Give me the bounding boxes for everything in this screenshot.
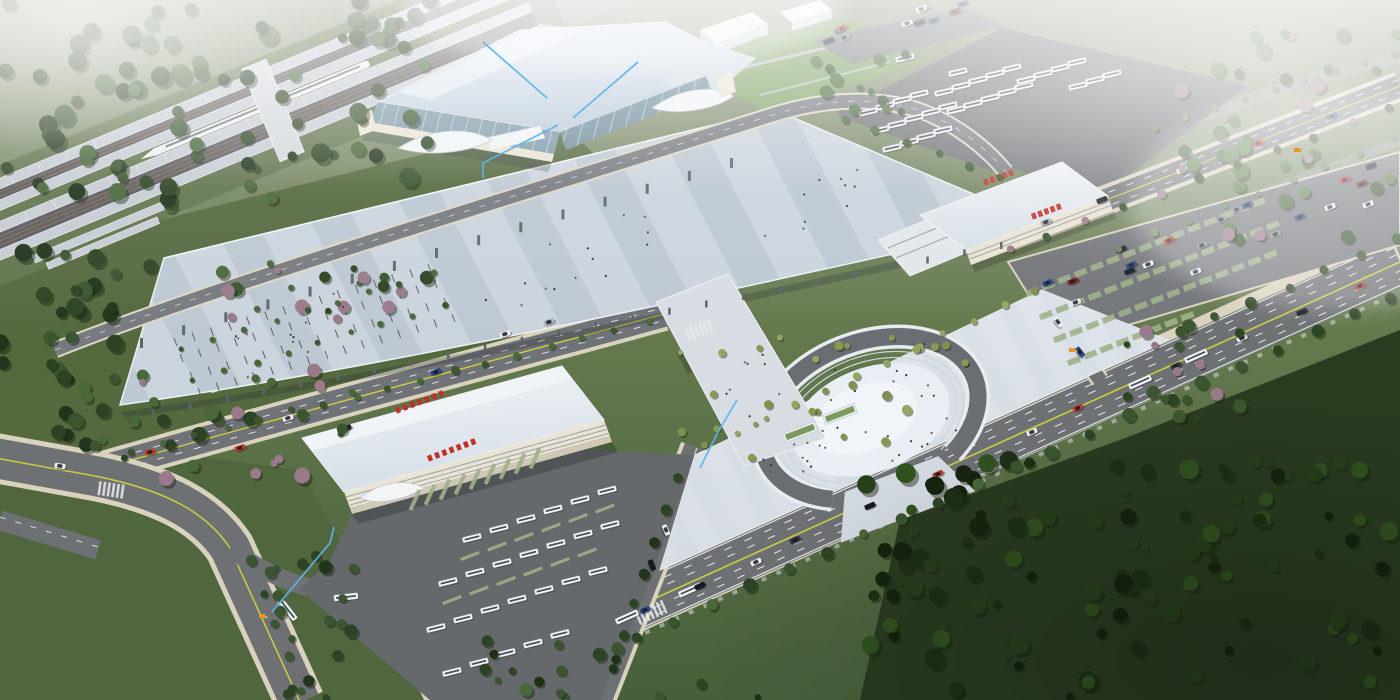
tree	[315, 340, 320, 345]
gate-post	[265, 616, 268, 619]
tree	[834, 341, 843, 350]
tree	[479, 664, 490, 675]
tree	[337, 619, 347, 629]
tree	[748, 454, 756, 462]
tree	[251, 374, 259, 382]
tree	[812, 356, 819, 363]
tree	[1273, 345, 1283, 355]
tree	[297, 687, 304, 694]
tree	[489, 650, 498, 659]
tree	[265, 566, 277, 578]
tree	[822, 388, 829, 395]
tree	[68, 413, 84, 429]
tree	[344, 624, 357, 637]
tree	[661, 504, 672, 515]
tree	[718, 349, 726, 357]
tree	[1175, 342, 1184, 351]
tree	[307, 364, 321, 378]
tree	[384, 385, 390, 391]
tree	[160, 440, 166, 446]
tree	[98, 436, 107, 445]
tree	[808, 408, 815, 415]
tree	[1161, 395, 1169, 403]
tree	[649, 537, 660, 548]
tree	[231, 407, 244, 420]
tree	[284, 652, 293, 661]
tree	[554, 640, 563, 649]
tree	[629, 599, 638, 608]
tree	[611, 642, 624, 655]
tree	[902, 405, 912, 415]
tree	[931, 343, 939, 351]
tree	[338, 594, 347, 603]
tree	[513, 352, 520, 359]
tree	[270, 619, 278, 627]
tree	[451, 366, 459, 374]
tree	[275, 455, 284, 464]
tree	[221, 367, 227, 373]
tree	[286, 350, 292, 356]
tree	[678, 350, 683, 355]
tree	[204, 405, 219, 420]
tree	[619, 630, 629, 640]
tree	[549, 343, 556, 350]
tree	[82, 392, 93, 403]
tree	[288, 635, 295, 642]
tree	[509, 667, 517, 675]
tree	[294, 468, 310, 484]
tree	[128, 415, 140, 427]
tree	[324, 616, 335, 627]
tree	[297, 558, 308, 569]
tree	[482, 361, 489, 368]
tree	[288, 406, 294, 412]
tree	[840, 434, 846, 440]
tree	[51, 425, 66, 440]
column	[152, 410, 155, 417]
tree	[190, 432, 197, 439]
tree	[611, 655, 620, 664]
tree	[337, 424, 348, 435]
tree	[349, 388, 356, 395]
tree	[1211, 388, 1224, 401]
column	[189, 403, 192, 410]
tree	[632, 633, 642, 643]
gate-barrier	[259, 614, 265, 618]
aerial-rendering-canvas: Aerial architectural rendering of a high…	[0, 0, 1400, 700]
tree	[942, 341, 950, 349]
tree	[187, 460, 199, 472]
column	[484, 344, 487, 351]
tree	[844, 343, 850, 349]
tree	[354, 394, 361, 401]
scene-svg	[0, 0, 1400, 700]
tree	[764, 416, 769, 421]
tree	[519, 683, 532, 696]
tree	[254, 416, 262, 424]
tree	[159, 471, 174, 486]
tree	[556, 689, 565, 698]
tree	[756, 345, 762, 351]
tree	[678, 428, 686, 436]
tree	[883, 360, 890, 367]
tree	[319, 560, 333, 574]
column	[447, 352, 450, 359]
gate-barrier	[1294, 148, 1300, 152]
gate-barrier	[1069, 348, 1075, 352]
tree	[267, 378, 276, 387]
tree	[250, 468, 261, 479]
car-cabin	[57, 464, 63, 468]
tree	[139, 379, 146, 386]
tree	[1151, 342, 1158, 349]
tree	[495, 677, 502, 684]
tree	[349, 564, 359, 574]
gate-post	[1300, 150, 1303, 153]
tree	[1196, 360, 1205, 369]
column	[299, 381, 302, 388]
tree	[481, 635, 492, 646]
gate-post	[1075, 350, 1078, 353]
column	[373, 366, 376, 373]
tree	[320, 401, 328, 409]
tree	[109, 373, 119, 383]
tree	[157, 414, 169, 426]
tree	[1195, 375, 1209, 389]
column	[336, 373, 339, 380]
tree	[417, 378, 423, 384]
tree	[332, 650, 343, 661]
tree	[96, 403, 110, 417]
tree	[593, 648, 606, 661]
tree	[556, 665, 567, 676]
tree	[46, 359, 57, 370]
tree	[225, 424, 231, 430]
column	[226, 395, 229, 402]
tree	[1123, 392, 1132, 401]
tree	[639, 569, 650, 580]
tree	[190, 378, 195, 383]
tree	[283, 689, 293, 699]
tree	[1173, 367, 1182, 376]
tree	[314, 380, 325, 391]
tree	[764, 400, 773, 409]
tree	[57, 370, 72, 385]
tree	[791, 401, 799, 409]
tree	[710, 391, 718, 399]
tree	[609, 664, 618, 673]
tree	[882, 391, 892, 401]
tree	[149, 397, 159, 407]
tree	[853, 372, 861, 380]
tree	[303, 675, 314, 686]
tree	[534, 677, 544, 687]
tree	[121, 455, 128, 462]
tree	[848, 381, 856, 389]
tree	[260, 590, 268, 598]
tree	[961, 359, 968, 366]
tree	[254, 360, 261, 367]
tree	[1147, 386, 1160, 399]
column	[263, 388, 266, 395]
tree	[297, 409, 309, 421]
tree	[1235, 361, 1246, 372]
tree	[246, 555, 257, 566]
tree	[127, 448, 134, 455]
tree	[179, 346, 184, 351]
column	[410, 359, 413, 366]
tree	[668, 617, 678, 627]
tree	[1124, 341, 1130, 347]
tree	[881, 437, 890, 446]
tree	[735, 431, 740, 436]
tree	[701, 442, 708, 449]
tree	[673, 473, 682, 482]
tree	[753, 422, 758, 427]
tree	[912, 345, 920, 353]
